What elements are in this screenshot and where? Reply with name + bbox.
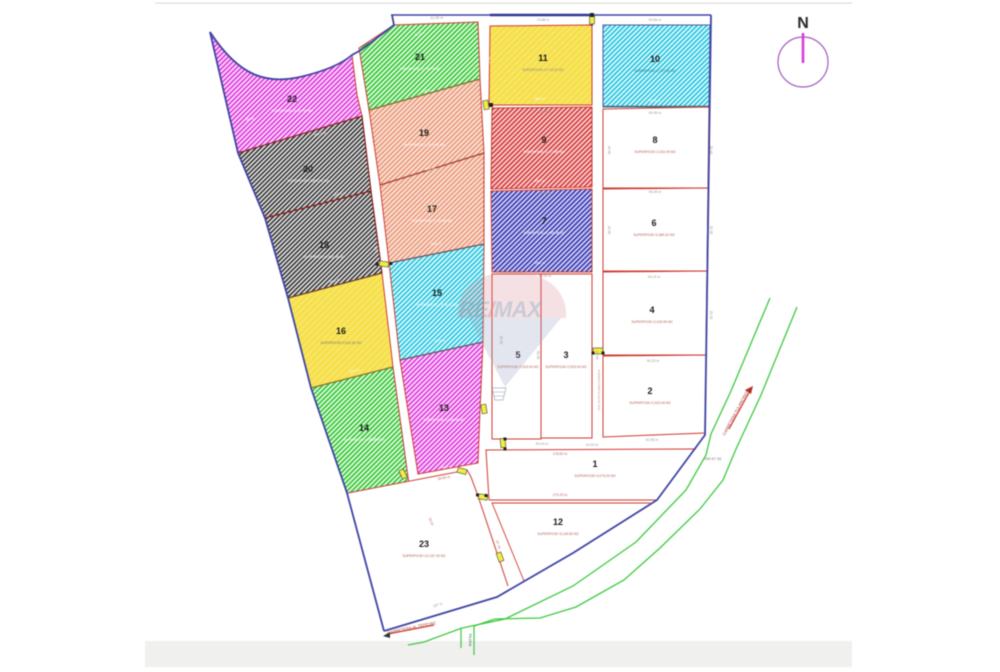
svg-text:N: N (797, 15, 809, 32)
svg-text:SUPERFICIE=2,333.99 M2: SUPERFICIE=2,333.99 M2 (631, 320, 672, 324)
svg-text:SUPERFICIE=2,520.00 M2: SUPERFICIE=2,520.00 M2 (545, 365, 586, 369)
svg-text:18: 18 (319, 240, 329, 250)
svg-text:24.60: 24.60 (607, 146, 611, 155)
svg-text:SUPERFICIE=10,157.00 M2: SUPERFICIE=10,157.00 M2 (402, 554, 445, 558)
svg-text:SUPERFICIE=2,511.50 M2: SUPERFICIE=2,511.50 M2 (321, 341, 362, 345)
svg-text:SUPERFICIE=3,130.60 M2: SUPERFICIE=3,130.60 M2 (537, 532, 578, 536)
svg-text:25.35: 25.35 (709, 226, 713, 235)
svg-text:20: 20 (303, 164, 313, 174)
svg-text:19: 19 (419, 128, 429, 138)
svg-text:10: 10 (650, 54, 660, 64)
svg-text:88.9 m: 88.9 m (535, 97, 546, 101)
svg-text:2: 2 (647, 386, 652, 396)
svg-text:6: 6 (651, 218, 656, 228)
svg-text:11: 11 (538, 53, 548, 63)
svg-text:94.15 m: 94.15 m (648, 275, 661, 279)
svg-text:3: 3 (563, 350, 568, 360)
svg-text:AVENIDA PORTULACAS OTE: AVENIDA PORTULACAS OTE (597, 370, 601, 411)
svg-text:12: 12 (553, 517, 563, 527)
svg-text:8: 8 (652, 135, 657, 145)
svg-text:1: 1 (592, 459, 597, 469)
svg-text:91.15 m: 91.15 m (539, 191, 552, 195)
svg-text:SUPERFICIE=2,342.09 M2: SUPERFICIE=2,342.09 M2 (634, 150, 675, 154)
svg-text:21: 21 (415, 52, 425, 62)
svg-text:SUPERFICIE=2,794.78 M2: SUPERFICIE=2,794.78 M2 (399, 67, 440, 71)
svg-text:9: 9 (541, 135, 546, 145)
svg-text:95.05 m: 95.05 m (649, 190, 662, 194)
svg-text:89.0 m: 89.0 m (535, 179, 546, 183)
svg-text:23: 23 (419, 539, 429, 549)
svg-text:25.40: 25.40 (709, 146, 713, 155)
svg-text:28.00: 28.00 (595, 351, 599, 360)
svg-text:94.9 m: 94.9 m (650, 99, 661, 103)
svg-text:SUPERFICIE=2,727.52 M2: SUPERFICIE=2,727.52 M2 (634, 69, 675, 73)
svg-text:17: 17 (427, 204, 437, 214)
svg-text:25.4: 25.4 (487, 56, 492, 63)
svg-text:178.50 m: 178.50 m (553, 452, 568, 456)
svg-text:SUPERFICIE=2,831.06 M2: SUPERFICIE=2,831.06 M2 (303, 255, 344, 259)
svg-text:92.95 m: 92.95 m (646, 438, 659, 442)
svg-text:13: 13 (439, 403, 449, 413)
svg-text:24.55: 24.55 (607, 226, 611, 235)
svg-text:SUPERFICIE=2,401.82 M2: SUPERFICIE=2,401.82 M2 (411, 219, 452, 223)
svg-text:PILONA: PILONA (468, 634, 472, 647)
svg-text:SUPERFICIE=2,716.00 M2: SUPERFICIE=2,716.00 M2 (522, 68, 563, 72)
svg-text:SUPERFICIE=4,075.00 M2: SUPERFICIE=4,075.00 M2 (574, 474, 615, 478)
svg-text:170.20 m: 170.20 m (553, 493, 568, 497)
svg-text:90.05 m: 90.05 m (539, 110, 552, 114)
svg-text:16: 16 (336, 326, 346, 336)
svg-text:RE/MAX: RE/MAX (459, 297, 543, 322)
svg-text:10.00 m: 10.00 m (586, 443, 599, 447)
svg-text:94.25 m: 94.25 m (647, 359, 660, 363)
svg-text:25.20: 25.20 (709, 311, 713, 320)
svg-text:15: 15 (432, 288, 442, 298)
svg-text:79.88 m: 79.88 m (537, 18, 550, 22)
svg-text:89.1 m: 89.1 m (535, 261, 546, 265)
svg-text:7: 7 (541, 216, 546, 226)
svg-text:SUPERFICIE=4,147.91 M2: SUPERFICIE=4,147.91 M2 (271, 109, 312, 113)
svg-text:SUPERFICIE=2,890.95 M2: SUPERFICIE=2,890.95 M2 (287, 179, 328, 183)
svg-text:25.1: 25.1 (374, 246, 379, 253)
svg-text:81.95 m: 81.95 m (431, 16, 444, 20)
svg-text:SM 67 62: SM 67 62 (704, 456, 722, 461)
svg-text:94.56 m: 94.56 m (649, 18, 662, 22)
svg-text:50.00 m: 50.00 m (536, 442, 549, 446)
svg-text:SUPERFICIE=2,477.80 M2: SUPERFICIE=2,477.80 M2 (523, 150, 564, 154)
svg-text:SUPERFICIE=2,485.08 M2: SUPERFICIE=2,485.08 M2 (523, 231, 564, 235)
svg-text:90.00: 90.00 (536, 351, 540, 360)
svg-text:94.95 m: 94.95 m (649, 111, 662, 115)
svg-text:SUPERFICIE=2,389.32 M2: SUPERFICIE=2,389.32 M2 (633, 233, 674, 237)
svg-text:SUPERFICIE=2,836.96 M2: SUPERFICIE=2,836.96 M2 (423, 418, 464, 422)
svg-text:14: 14 (359, 423, 369, 433)
svg-text:SUPERFICIE=2,578.12 M2: SUPERFICIE=2,578.12 M2 (416, 303, 457, 307)
svg-text:4: 4 (649, 305, 654, 315)
svg-text:SUPERFICIE=2,543.52 M2: SUPERFICIE=2,543.52 M2 (403, 143, 444, 147)
svg-text:SUPERFICIE=2,323.44 M2: SUPERFICIE=2,323.44 M2 (629, 401, 670, 405)
svg-text:22: 22 (287, 94, 297, 104)
